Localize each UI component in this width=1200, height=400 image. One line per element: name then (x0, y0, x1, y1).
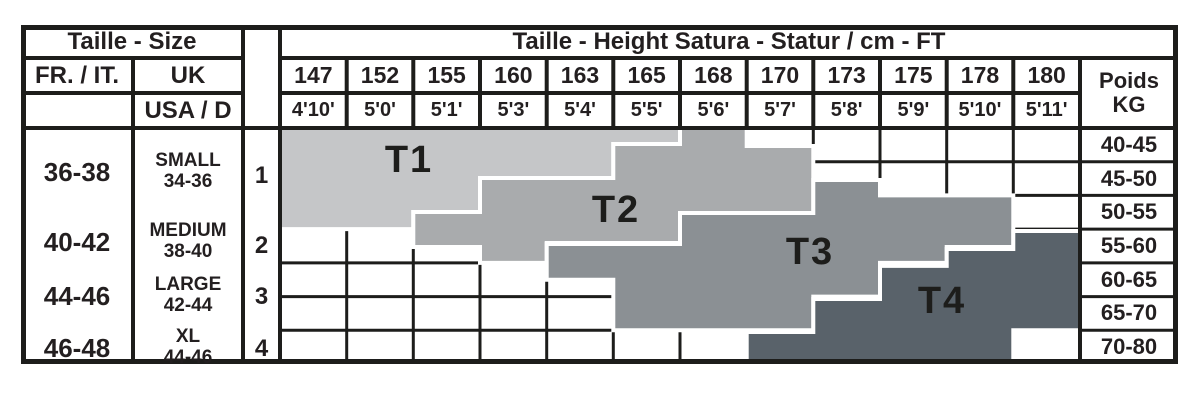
height-ft-cell: 5'10' (947, 93, 1014, 128)
height-cm-cell: 168 (680, 58, 747, 93)
uk-size-range: 38-40 (164, 242, 213, 263)
height-cm-cell: 155 (413, 58, 480, 93)
fr-it-header: FR. / IT. (21, 58, 133, 93)
weight-header-line2: KG (1113, 93, 1146, 117)
uk-size-name: MEDIUM (149, 221, 226, 242)
band-label-t1: T1 (349, 138, 469, 182)
height-cm-cell: 173 (813, 58, 880, 93)
height-ft-cell: 5'8' (813, 93, 880, 128)
weight-kg-cell: 55-60 (1080, 229, 1178, 263)
height-cm-cell: 152 (347, 58, 414, 93)
height-ft-cell: 5'7' (747, 93, 814, 128)
height-cm-cell: 175 (880, 58, 947, 93)
size-uk-value: LARGE42-44 (133, 273, 243, 319)
height-ft-cell: 5'9' (880, 93, 947, 128)
height-ft-cell: 5'3' (480, 93, 547, 128)
uk-size-name: XL (176, 327, 200, 348)
size-uk-value: MEDIUM38-40 (133, 219, 243, 265)
height-ft-cell: 5'6' (680, 93, 747, 128)
band-label-t3: T3 (750, 230, 870, 274)
height-cm-cell: 170 (747, 58, 814, 93)
height-cm-cell: 180 (1013, 58, 1080, 93)
uk-size-name: LARGE (155, 275, 222, 296)
weight-kg-cell: 65-70 (1080, 297, 1178, 331)
uk-size-range: 44-46 (164, 348, 213, 369)
height-cm-cell: 165 (613, 58, 680, 93)
size-usa-d-value: 1 (243, 156, 280, 196)
uk-size-range: 34-36 (164, 172, 213, 193)
band-label-t2: T2 (556, 188, 676, 232)
size-fr-it-value: 44-46 (21, 276, 133, 316)
band-label-t4: T4 (882, 279, 1002, 323)
size-usa-d-value: 2 (243, 226, 280, 266)
weight-kg-cell: 70-80 (1080, 330, 1178, 364)
uk-header: UK (133, 58, 243, 93)
uk-size-range: 42-44 (164, 296, 213, 317)
size-fr-it-value: 46-48 (21, 328, 133, 368)
size-title: Taille - Size (21, 25, 243, 58)
height-title: Taille - Height Satura - Statur / cm - F… (280, 25, 1178, 58)
weight-kg-cell: 45-50 (1080, 162, 1178, 196)
size-uk-value: XL44-46 (133, 325, 243, 371)
height-cm-cell: 178 (947, 58, 1014, 93)
height-ft-cell: 5'11' (1013, 93, 1080, 128)
weight-header: Poids KG (1080, 58, 1178, 128)
size-usa-d-value: 4 (243, 329, 280, 369)
usa-d-header: USA / D (133, 93, 243, 128)
height-ft-cell: 5'5' (613, 93, 680, 128)
size-fr-it-value: 36-38 (21, 152, 133, 192)
size-uk-value: SMALL34-36 (133, 149, 243, 195)
size-usa-d-value: 3 (243, 277, 280, 317)
weight-kg-cell: 40-45 (1080, 128, 1178, 162)
size-fr-it-value: 40-42 (21, 222, 133, 262)
weight-kg-cell: 60-65 (1080, 263, 1178, 297)
height-cm-cell: 163 (547, 58, 614, 93)
height-ft-cell: 5'0' (347, 93, 414, 128)
weight-kg-cell: 50-55 (1080, 195, 1178, 229)
uk-size-name: SMALL (155, 151, 220, 172)
height-ft-cell: 5'1' (413, 93, 480, 128)
height-cm-cell: 147 (280, 58, 347, 93)
height-ft-cell: 4'10' (280, 93, 347, 128)
height-cm-cell: 160 (480, 58, 547, 93)
weight-header-line1: Poids (1099, 69, 1159, 93)
size-chart: Taille - Size Taille - Height Satura - S… (0, 0, 1200, 400)
height-ft-cell: 5'4' (547, 93, 614, 128)
